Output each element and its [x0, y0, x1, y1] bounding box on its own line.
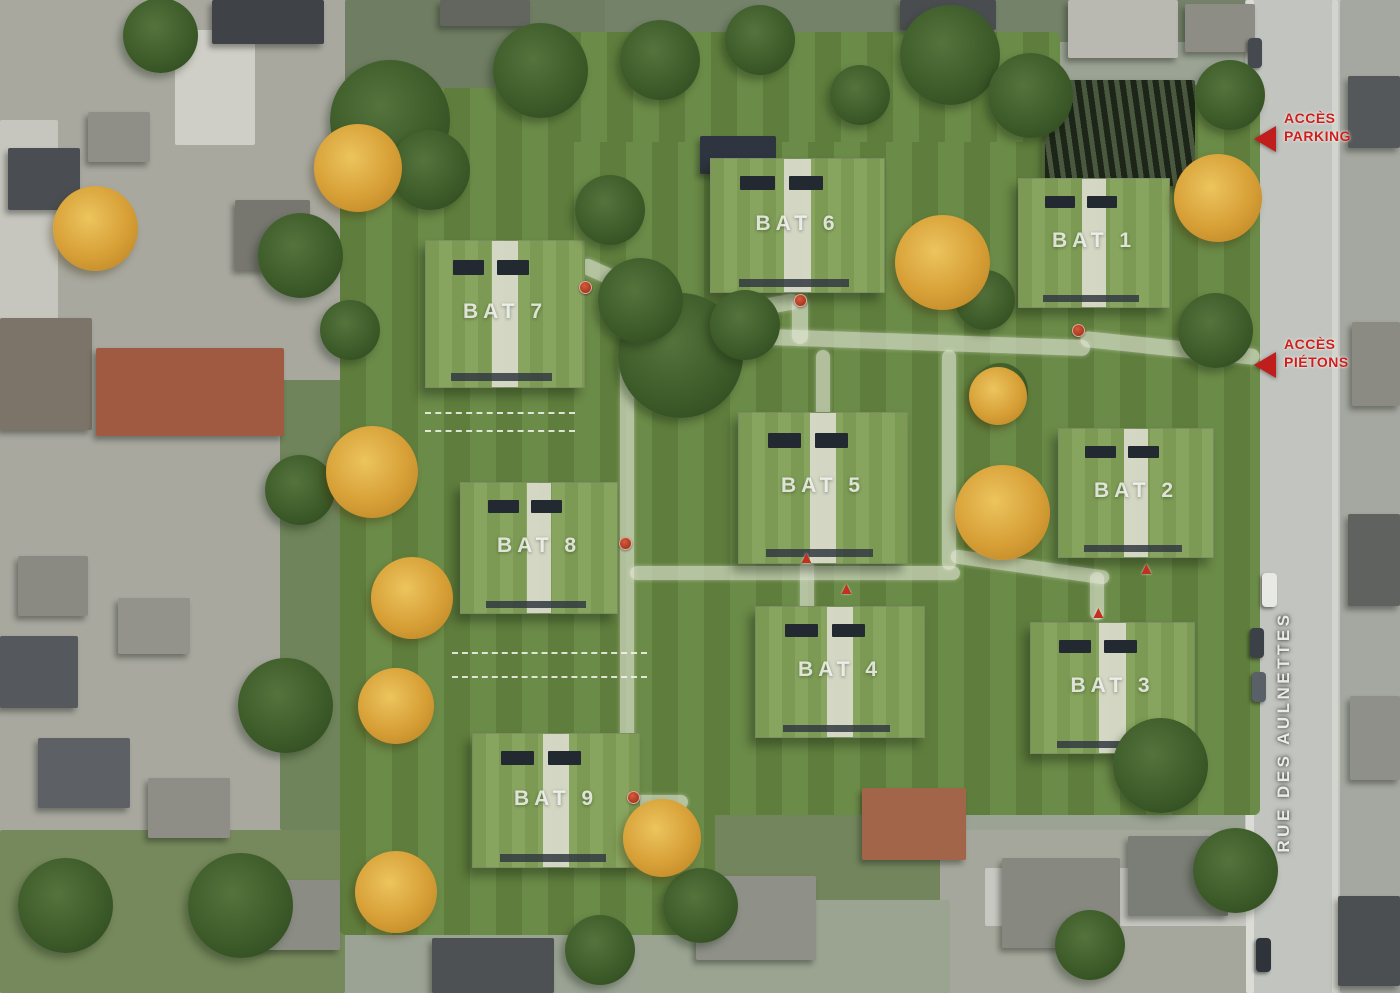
roof-panel [785, 624, 819, 637]
tree-green [565, 915, 635, 985]
roof-edge-strip [1084, 545, 1183, 552]
building-bat-7: BAT 7 [425, 240, 585, 388]
building-bat-8: BAT 8 [460, 482, 618, 614]
neighbor-house [0, 636, 78, 708]
neighbor-house [1352, 322, 1400, 406]
building-label: BAT 4 [756, 658, 924, 682]
access-pietons-label-line2: PIÉTONS [1284, 354, 1349, 372]
building-roof-bat-8: BAT 8 [460, 482, 618, 614]
tree-orange [314, 124, 402, 212]
tree-green [988, 53, 1073, 138]
roof-edge-strip [739, 279, 850, 286]
neighbor-house [1185, 4, 1255, 52]
access-pietons-label-line1: ACCÈS [1284, 336, 1349, 354]
roof-panel [1045, 196, 1075, 209]
tree-orange [623, 799, 701, 877]
building-bat-9: BAT 9 [472, 733, 640, 868]
road [1332, 0, 1338, 993]
entrance-triangle-icon: ▲ [838, 580, 855, 597]
tree-orange [895, 215, 990, 310]
neighbor-house [1338, 896, 1400, 986]
building-bat-4: BAT 4 [755, 606, 925, 738]
building-label: BAT 1 [1019, 229, 1169, 253]
entrance-marker-icon [619, 537, 632, 550]
neighbor-house [38, 738, 130, 808]
tree-orange [371, 557, 453, 639]
building-bat-1: BAT 1 [1018, 178, 1170, 308]
tree-green [1178, 293, 1253, 368]
roof-panel [1087, 196, 1117, 209]
footpath [816, 350, 830, 420]
building-label: BAT 7 [426, 300, 584, 324]
entrance-marker-icon [1072, 324, 1085, 337]
neighbor-house [440, 0, 530, 26]
roof-panel [832, 624, 866, 637]
building-roof-bat-5: BAT 5 [738, 412, 908, 564]
tree-green [1113, 718, 1208, 813]
building-bat-2: BAT 2 [1058, 428, 1214, 558]
access-parking-label-line2: PARKING [1284, 128, 1351, 146]
entrance-triangle-icon: ▲ [1090, 604, 1107, 621]
tree-green [320, 300, 380, 360]
access-parking-annotation: ACCÈS PARKING [1284, 110, 1351, 145]
roof-panel [815, 433, 849, 448]
tree-green [18, 858, 113, 953]
roof-edge-strip [451, 373, 552, 381]
tree-green [900, 5, 1000, 105]
tree-green [238, 658, 333, 753]
building-bat-6: BAT 6 [710, 158, 885, 293]
tree-green [188, 853, 293, 958]
tree-green [620, 20, 700, 100]
building-roof-bat-7: BAT 7 [425, 240, 585, 388]
neighbor-house [1348, 514, 1400, 606]
roof-panel [501, 751, 534, 764]
tree-green [265, 455, 335, 525]
entrance-triangle-icon: ▲ [1138, 560, 1155, 577]
tree-orange [326, 426, 418, 518]
site-plan-map: RUE DES AULNETTES ACCÈS PARKING ACCÈS PI… [0, 0, 1400, 993]
roof-panel [789, 176, 824, 189]
footpath [630, 566, 960, 580]
building-label: BAT 8 [461, 534, 617, 558]
tree-green [575, 175, 645, 245]
roof-panel [531, 500, 562, 513]
neighbor-house [118, 598, 190, 654]
building-label: BAT 2 [1059, 479, 1213, 503]
building-label: BAT 5 [739, 474, 907, 498]
tree-orange [969, 367, 1027, 425]
neighbor-house [148, 778, 230, 838]
neighbor-house [1348, 76, 1400, 148]
tree-green [1193, 828, 1278, 913]
map-zone [1340, 0, 1400, 993]
roof-edge-strip [783, 725, 891, 732]
entrance-triangle-icon: ▲ [798, 549, 815, 566]
roof-panel [1104, 640, 1137, 653]
tree-orange [355, 851, 437, 933]
building-bat-5: BAT 5 [738, 412, 908, 564]
tree-green [830, 65, 890, 125]
neighbor-house [0, 318, 92, 430]
roof-panel [1085, 446, 1116, 459]
tree-green [123, 0, 198, 73]
neighbor-house [96, 348, 284, 436]
neighbor-house [1350, 696, 1400, 780]
tree-orange [1174, 154, 1262, 242]
roof-edge-strip [766, 549, 874, 557]
street-name-label: RUE DES AULNETTES [1274, 556, 1294, 908]
building-label: BAT 9 [473, 787, 639, 811]
tree-green [598, 258, 683, 343]
roof-panel [740, 176, 775, 189]
tree-orange [53, 186, 138, 271]
building-label: BAT 6 [711, 212, 884, 236]
parked-car [1252, 672, 1266, 702]
access-parking-label-line1: ACCÈS [1284, 110, 1351, 128]
roof-panel [548, 751, 581, 764]
roof-panel [453, 260, 485, 275]
roof-panel [488, 500, 519, 513]
roof-edge-strip [1043, 295, 1139, 302]
tree-green [390, 130, 470, 210]
building-roof-bat-4: BAT 4 [755, 606, 925, 738]
neighbor-house [862, 788, 966, 860]
tree-green [663, 868, 738, 943]
neighbor-house [212, 0, 324, 44]
tree-green [710, 290, 780, 360]
parked-car [1248, 38, 1262, 68]
tree-green [258, 213, 343, 298]
access-pietons-arrow-icon [1254, 352, 1276, 378]
tree-orange [358, 668, 434, 744]
roof-panel [1128, 446, 1159, 459]
tree-green [1055, 910, 1125, 980]
neighbor-house [432, 938, 554, 993]
tree-green [725, 5, 795, 75]
neighbor-house [1068, 0, 1178, 58]
access-parking-arrow-icon [1254, 126, 1276, 152]
parked-car [1256, 938, 1271, 972]
parking-markings [425, 412, 575, 432]
footpath [942, 350, 956, 570]
building-label: BAT 3 [1031, 674, 1194, 698]
building-roof-bat-1: BAT 1 [1018, 178, 1170, 308]
access-pietons-annotation: ACCÈS PIÉTONS [1284, 336, 1349, 371]
building-roof-bat-6: BAT 6 [710, 158, 885, 293]
roof-panel [768, 433, 802, 448]
roof-edge-strip [500, 854, 606, 861]
parking-markings [452, 652, 647, 678]
neighbor-house [88, 112, 150, 162]
roof-panel [497, 260, 529, 275]
roof-edge-strip [486, 601, 586, 608]
parked-car [1250, 628, 1264, 658]
tree-orange [955, 465, 1050, 560]
neighbor-house [18, 556, 88, 616]
entrance-marker-icon [579, 281, 592, 294]
roof-panel [1059, 640, 1092, 653]
building-roof-bat-2: BAT 2 [1058, 428, 1214, 558]
building-roof-bat-9: BAT 9 [472, 733, 640, 868]
entrance-marker-icon [627, 791, 640, 804]
tree-green [493, 23, 588, 118]
entrance-marker-icon [794, 294, 807, 307]
tree-green [1195, 60, 1265, 130]
